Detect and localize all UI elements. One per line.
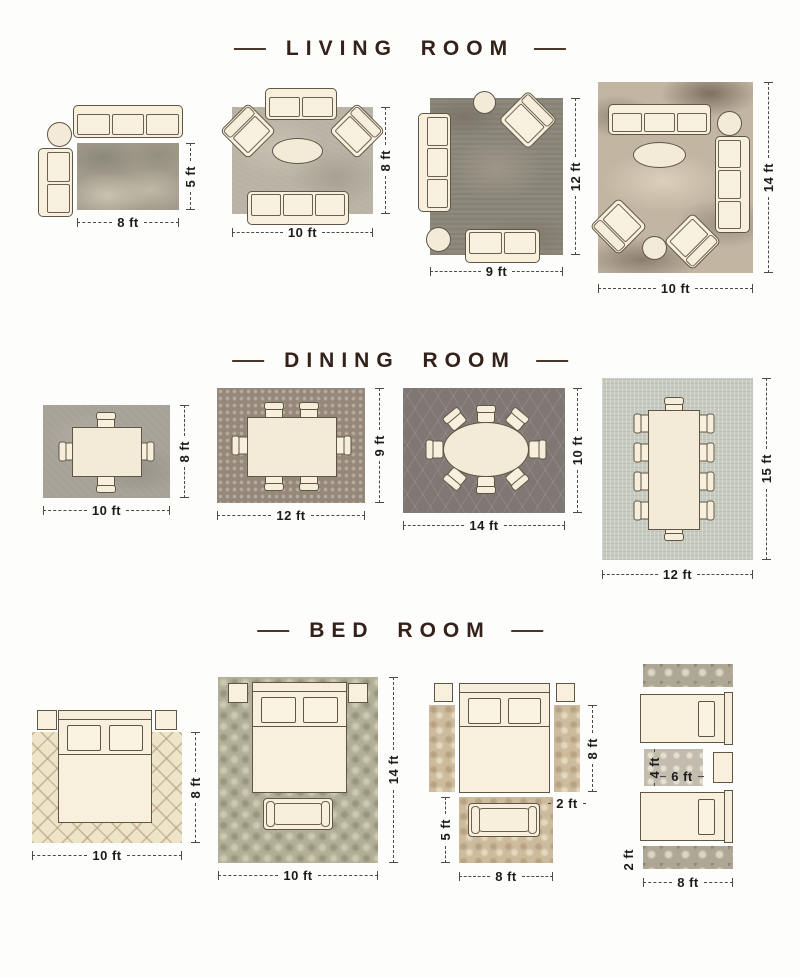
- width-dimension: 12 ft: [602, 566, 753, 582]
- height-dimension: 12 ft: [567, 98, 583, 255]
- sofa: [265, 88, 337, 120]
- width-dimension: 12 ft: [217, 507, 365, 523]
- bench: [263, 798, 333, 830]
- layout-living-4: 14 ft 10 ft: [590, 75, 795, 300]
- twin-bed: [640, 694, 726, 743]
- pillow: [303, 697, 338, 723]
- bench: [468, 803, 540, 837]
- title-dash-right: [534, 48, 566, 51]
- runner-width-dimension: 8 ft: [643, 874, 733, 890]
- layout-bed-4: 4 ft 6 ft 2 ft 8 ft: [620, 655, 798, 895]
- oval-coffee-table: [633, 142, 686, 168]
- nightstand: [348, 683, 368, 703]
- layout-dining-3: 10 ft 14 ft: [395, 380, 585, 538]
- foot-rug-width-dimension: 8 ft: [459, 868, 553, 884]
- section-title-bed-room: BED ROOM: [257, 619, 543, 643]
- height-label: 5 ft: [184, 166, 197, 188]
- width-label: 12 ft: [276, 509, 305, 522]
- section-title-living-room: LIVING ROOM: [234, 37, 566, 61]
- pillow: [468, 698, 501, 724]
- pillow: [67, 725, 101, 751]
- sofa: [73, 105, 183, 138]
- runner-width-label: 8 ft: [677, 876, 699, 889]
- section-title-text: LIVING ROOM: [286, 37, 514, 61]
- runner-height-label: 2 ft: [622, 849, 635, 871]
- runner-rug: [643, 664, 733, 687]
- width-dimension: 14 ft: [403, 517, 565, 533]
- height-label: 8 ft: [379, 150, 392, 172]
- dining-chair: [429, 441, 444, 459]
- runner-length-label: 8 ft: [586, 738, 599, 760]
- dining-table: [648, 410, 700, 530]
- nightstand: [155, 710, 177, 730]
- sofa: [247, 191, 349, 225]
- title-dash-right: [511, 630, 543, 633]
- dining-chair: [97, 475, 115, 490]
- width-dimension: 10 ft: [32, 847, 182, 863]
- width-label: 10 ft: [92, 849, 121, 862]
- dining-chair: [529, 441, 544, 459]
- round-side-table: [473, 91, 496, 114]
- pillow: [698, 701, 715, 737]
- twin-bed: [640, 792, 726, 841]
- section-title-dining-room: DINING ROOM: [232, 349, 568, 373]
- section-title-text: DINING ROOM: [284, 349, 516, 373]
- nightstand: [434, 683, 453, 702]
- nightstand: [37, 710, 57, 730]
- height-label: 10 ft: [571, 436, 584, 465]
- bed: [252, 682, 347, 793]
- nightstand: [228, 683, 248, 703]
- title-dash-left: [234, 48, 266, 51]
- height-label: 12 ft: [569, 162, 582, 191]
- width-dimension: 9 ft: [430, 263, 563, 279]
- width-dimension: 8 ft: [77, 214, 179, 230]
- layout-bed-1: 8 ft 10 ft: [25, 700, 215, 865]
- height-dimension: 8 ft: [377, 107, 393, 214]
- headboard: [459, 683, 550, 693]
- round-side-table: [717, 111, 742, 136]
- runner-rug: [554, 705, 580, 792]
- nightstand: [713, 752, 733, 783]
- width-dimension: 10 ft: [598, 280, 753, 296]
- rug-size-guide: LIVING ROOM 5 ft 8 ft 8 ft 10 ft: [0, 0, 800, 978]
- height-label: 14 ft: [387, 755, 400, 784]
- runner-length-dimension: 8 ft: [584, 705, 600, 792]
- between-rug-width-label: 6 ft: [671, 770, 693, 783]
- height-dimension: 5 ft: [182, 143, 198, 210]
- round-side-table: [47, 122, 72, 147]
- height-label: 14 ft: [762, 163, 775, 192]
- headboard: [252, 682, 347, 692]
- layout-living-2: 8 ft 10 ft: [225, 85, 400, 245]
- layout-dining-1: 8 ft 10 ft: [35, 395, 195, 520]
- pillow: [109, 725, 143, 751]
- between-rug-height-label: 4 ft: [648, 757, 661, 779]
- sofa: [608, 104, 711, 135]
- sofa-vertical: [715, 136, 750, 233]
- bed: [459, 683, 550, 793]
- nightstand: [556, 683, 575, 702]
- runner-rug: [429, 705, 455, 792]
- round-side-table: [426, 227, 451, 252]
- width-label: 9 ft: [486, 265, 508, 278]
- width-dimension: 10 ft: [232, 224, 373, 240]
- width-label: 12 ft: [663, 568, 692, 581]
- layout-bed-2: 14 ft 10 ft: [210, 670, 405, 890]
- dining-chair: [477, 476, 495, 491]
- foot-rug-height-label: 5 ft: [439, 819, 452, 841]
- foot-rug-height-dimension: 5 ft: [437, 797, 453, 863]
- layout-dining-4: 15 ft 12 ft: [595, 370, 790, 590]
- between-rug-width-dimension: 6 ft: [660, 768, 704, 784]
- width-label: 10 ft: [661, 282, 690, 295]
- height-label: 8 ft: [178, 441, 191, 463]
- height-dimension: 10 ft: [569, 388, 585, 513]
- height-dimension: 8 ft: [176, 405, 192, 498]
- title-dash-left: [257, 630, 289, 633]
- dining-chair: [477, 408, 495, 423]
- pillow: [508, 698, 541, 724]
- dining-table: [247, 417, 337, 477]
- headboard: [724, 790, 733, 843]
- width-label: 8 ft: [117, 216, 139, 229]
- sofa-vertical: [38, 148, 73, 217]
- headboard: [724, 692, 733, 745]
- title-dash-right: [536, 360, 568, 363]
- width-label: 10 ft: [288, 226, 317, 239]
- sofa: [465, 229, 540, 263]
- rug: [77, 143, 179, 210]
- height-dimension: 15 ft: [758, 378, 774, 560]
- height-dimension: 8 ft: [187, 732, 203, 843]
- section-title-text: BED ROOM: [309, 619, 491, 643]
- pillow: [261, 697, 296, 723]
- layout-dining-2: 9 ft 12 ft: [210, 380, 388, 530]
- runner-width-label: 2 ft: [556, 797, 578, 810]
- dining-table: [72, 427, 142, 477]
- height-label: 15 ft: [760, 454, 773, 483]
- height-dimension: 9 ft: [371, 388, 387, 503]
- round-side-table: [642, 236, 667, 260]
- width-label: 14 ft: [469, 519, 498, 532]
- bed: [58, 710, 152, 823]
- width-label: 10 ft: [92, 504, 121, 517]
- layout-living-1: 5 ft 8 ft: [30, 95, 230, 245]
- runner-height-dimension: 2 ft: [620, 844, 636, 871]
- layout-bed-3: 8 ft 2 ft 5 ft 8 ft: [425, 670, 610, 888]
- width-dimension: 10 ft: [218, 867, 378, 883]
- oval-coffee-table: [272, 138, 323, 164]
- height-dimension: 14 ft: [385, 677, 401, 863]
- height-dimension: 14 ft: [760, 82, 776, 273]
- height-label: 8 ft: [189, 777, 202, 799]
- foot-rug-width-label: 8 ft: [495, 870, 517, 883]
- runner-rug: [643, 846, 733, 869]
- oval-dining-table: [443, 422, 529, 477]
- headboard: [58, 710, 152, 720]
- width-dimension: 10 ft: [43, 502, 170, 518]
- pillow: [698, 799, 715, 835]
- height-label: 9 ft: [373, 435, 386, 457]
- sofa-vertical: [418, 113, 451, 212]
- runner-width-dimension: 2 ft: [548, 795, 586, 811]
- width-label: 10 ft: [283, 869, 312, 882]
- title-dash-left: [232, 360, 264, 363]
- layout-living-3: 12 ft 9 ft: [410, 85, 590, 285]
